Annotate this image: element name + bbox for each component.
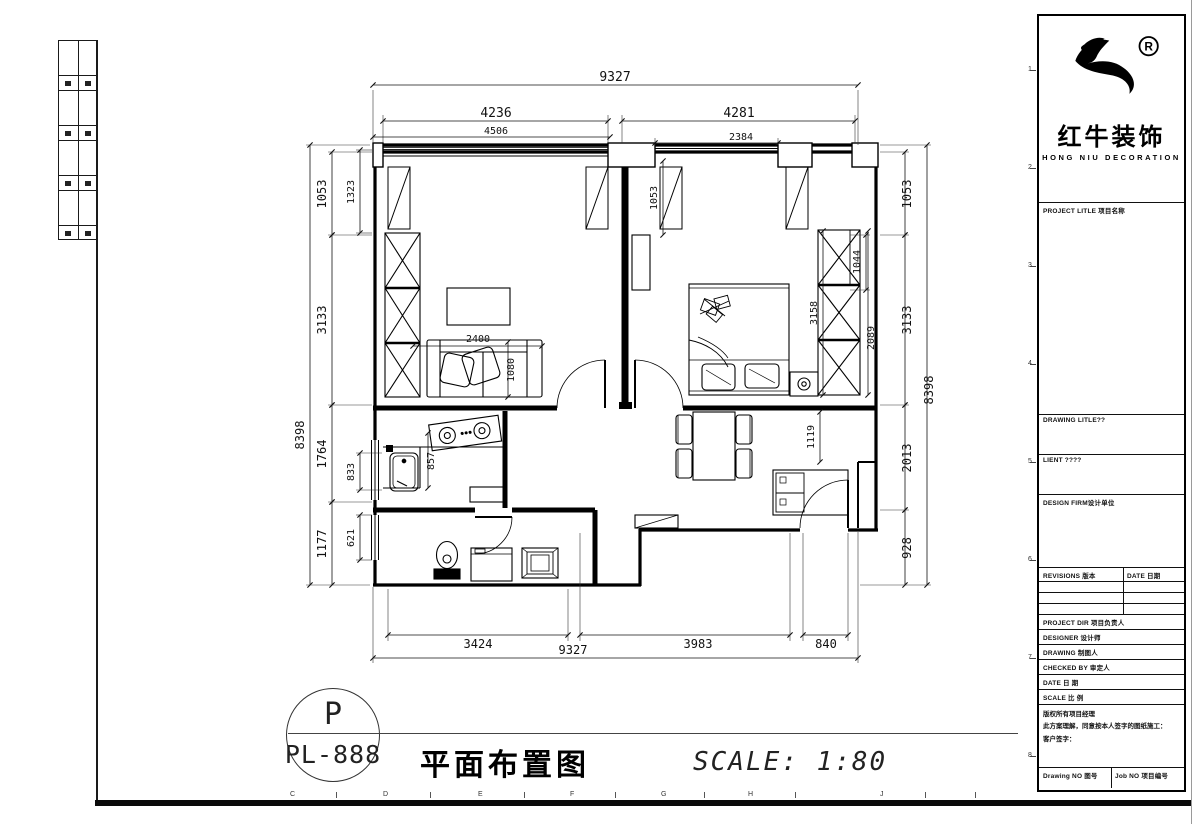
bed-decor-flowers [700, 295, 730, 322]
grid-letter: H [748, 791, 753, 798]
dimension-label: 1053 [900, 180, 914, 209]
svg-text:R: R [1144, 39, 1153, 53]
shower-drain [522, 548, 558, 578]
grid-tick [1030, 168, 1036, 169]
drawing-title: 平面布置图 [420, 740, 590, 784]
dimension-label: 8398 [293, 421, 307, 450]
grid-tick [1030, 364, 1036, 365]
field-drawing-title: DRAWING LITLE?? [1039, 414, 1184, 454]
grid-tick [704, 792, 705, 798]
dimension-label: 4236 [480, 106, 511, 121]
nightstand [790, 372, 818, 396]
wardrobe-left [385, 233, 420, 397]
gas-stove [429, 415, 502, 450]
grid-letter: E [478, 791, 483, 798]
dimension-label: 2089 [866, 326, 877, 350]
sheet-inner-border-bottom [95, 800, 1192, 806]
doors [475, 360, 848, 554]
dimension-label: 2013 [900, 444, 914, 473]
footer-rule [288, 733, 1018, 734]
dimension-label: 928 [900, 537, 914, 559]
field-design-firm: DESIGN FIRM设计单位 [1039, 494, 1184, 567]
revisions-row [1039, 581, 1184, 592]
brand-name-cn: 红牛装饰 [1039, 117, 1184, 152]
drawing-sheet: 9327423642814506238434243983840932783981… [0, 0, 1200, 824]
dimension-label: 9327 [559, 643, 588, 657]
field-scale: SCALE 比 例 [1039, 689, 1184, 704]
dimension-label: 4506 [484, 126, 508, 137]
dimension-label: 9327 [599, 70, 630, 85]
dimension-label: 1053 [315, 180, 329, 209]
sheet-edge-right [1191, 0, 1192, 824]
grid-tick [1030, 266, 1036, 267]
grid-tick [1030, 658, 1036, 659]
revisions-row [1039, 592, 1184, 603]
copyright-notes: 版权所有项目经理 此方案理解，同意按本人签字的图纸施工： 客户签字： [1039, 704, 1184, 767]
dimension-label: 3424 [464, 637, 493, 651]
extension-lines [306, 90, 931, 663]
fridge-cabinet [773, 470, 848, 515]
drawing-scale: SCALE: 1:80 [693, 747, 887, 777]
kitchen-sink [390, 453, 418, 491]
field-checked-by: CHECKED BY 审定人 [1039, 659, 1184, 674]
dimension-label: 8398 [922, 376, 936, 405]
bull-logo-icon: R [1057, 26, 1167, 114]
grid-letter: G [661, 791, 666, 798]
dimension-label: 3983 [684, 637, 713, 651]
dimension-label: 840 [815, 637, 837, 651]
grid-tick [524, 792, 525, 798]
dimension-label: 1119 [806, 425, 817, 449]
grid-tick [795, 792, 796, 798]
dimension-label: 3133 [315, 306, 329, 335]
niche-shelf [632, 235, 650, 290]
dimension-label: 1323 [346, 180, 357, 204]
sheet-letter: P [286, 697, 380, 732]
field-drawing-no: Drawing NO 图号 Job NO 项目编号 [1039, 767, 1184, 788]
brand-logo: R 红牛装饰 HONG NIU DECORATION [1039, 16, 1184, 202]
grid-letter: C [290, 791, 295, 798]
sofa [427, 340, 542, 397]
dimension-label: 857 [426, 452, 437, 470]
tv-cabinet [447, 288, 510, 325]
revisions-row [1039, 603, 1184, 614]
dimension-label: 3133 [900, 306, 914, 335]
washing-machine [471, 548, 512, 581]
grid-letter: J [880, 791, 884, 798]
grid-letter: D [383, 791, 388, 798]
margin-stamp-table [58, 40, 98, 240]
brand-name-en: HONG NIU DECORATION [1039, 153, 1184, 162]
grid-tick [430, 792, 431, 798]
field-project-dir: PROJECT DIR 项目负责人 [1039, 614, 1184, 629]
grid-tick [925, 792, 926, 798]
field-drawing: DRAWING 制图人 [1039, 644, 1184, 659]
dimension-label: 621 [346, 529, 357, 547]
title-block: R 红牛装饰 HONG NIU DECORATION PROJECT LITLE… [1037, 14, 1186, 792]
dimension-label: 3158 [809, 301, 820, 325]
dimension-label: 2400 [466, 334, 490, 345]
grid-letter: F [570, 791, 574, 798]
field-project-title: PROJECT LITLE 项目名称 [1039, 202, 1184, 414]
floor-plan-canvas: 9327423642814506238434243983840932783981… [290, 55, 990, 680]
grid-tick [1030, 462, 1036, 463]
dimension-label: 2384 [729, 132, 753, 143]
shoe-cabinet [635, 515, 678, 528]
dimension-label: 1177 [315, 530, 329, 559]
field-date: DATE 日 期 [1039, 674, 1184, 689]
grid-tick [1030, 560, 1036, 561]
sheet-number: PL-888 [284, 740, 382, 769]
walls [373, 145, 878, 586]
dimension-label: 1764 [315, 440, 329, 469]
field-revisions-header: REVISIONS 版本 DATE 日期 [1039, 567, 1184, 581]
dimension-label: 833 [346, 463, 357, 481]
field-client: LIENT ???? [1039, 454, 1184, 494]
dining-table [676, 412, 752, 480]
dimension-label: 4281 [723, 106, 754, 121]
dimension-label: 1053 [649, 186, 660, 210]
grid-tick [336, 792, 337, 798]
grid-tick [1030, 70, 1036, 71]
casement-window-icon [388, 167, 808, 229]
grid-tick [1030, 756, 1036, 757]
toilet [434, 542, 460, 580]
dimension-label: 1080 [506, 358, 517, 382]
dimension-label: 1044 [852, 250, 863, 274]
field-designer: DESIGNER 设计师 [1039, 629, 1184, 644]
grid-tick [615, 792, 616, 798]
grid-tick [975, 792, 976, 798]
